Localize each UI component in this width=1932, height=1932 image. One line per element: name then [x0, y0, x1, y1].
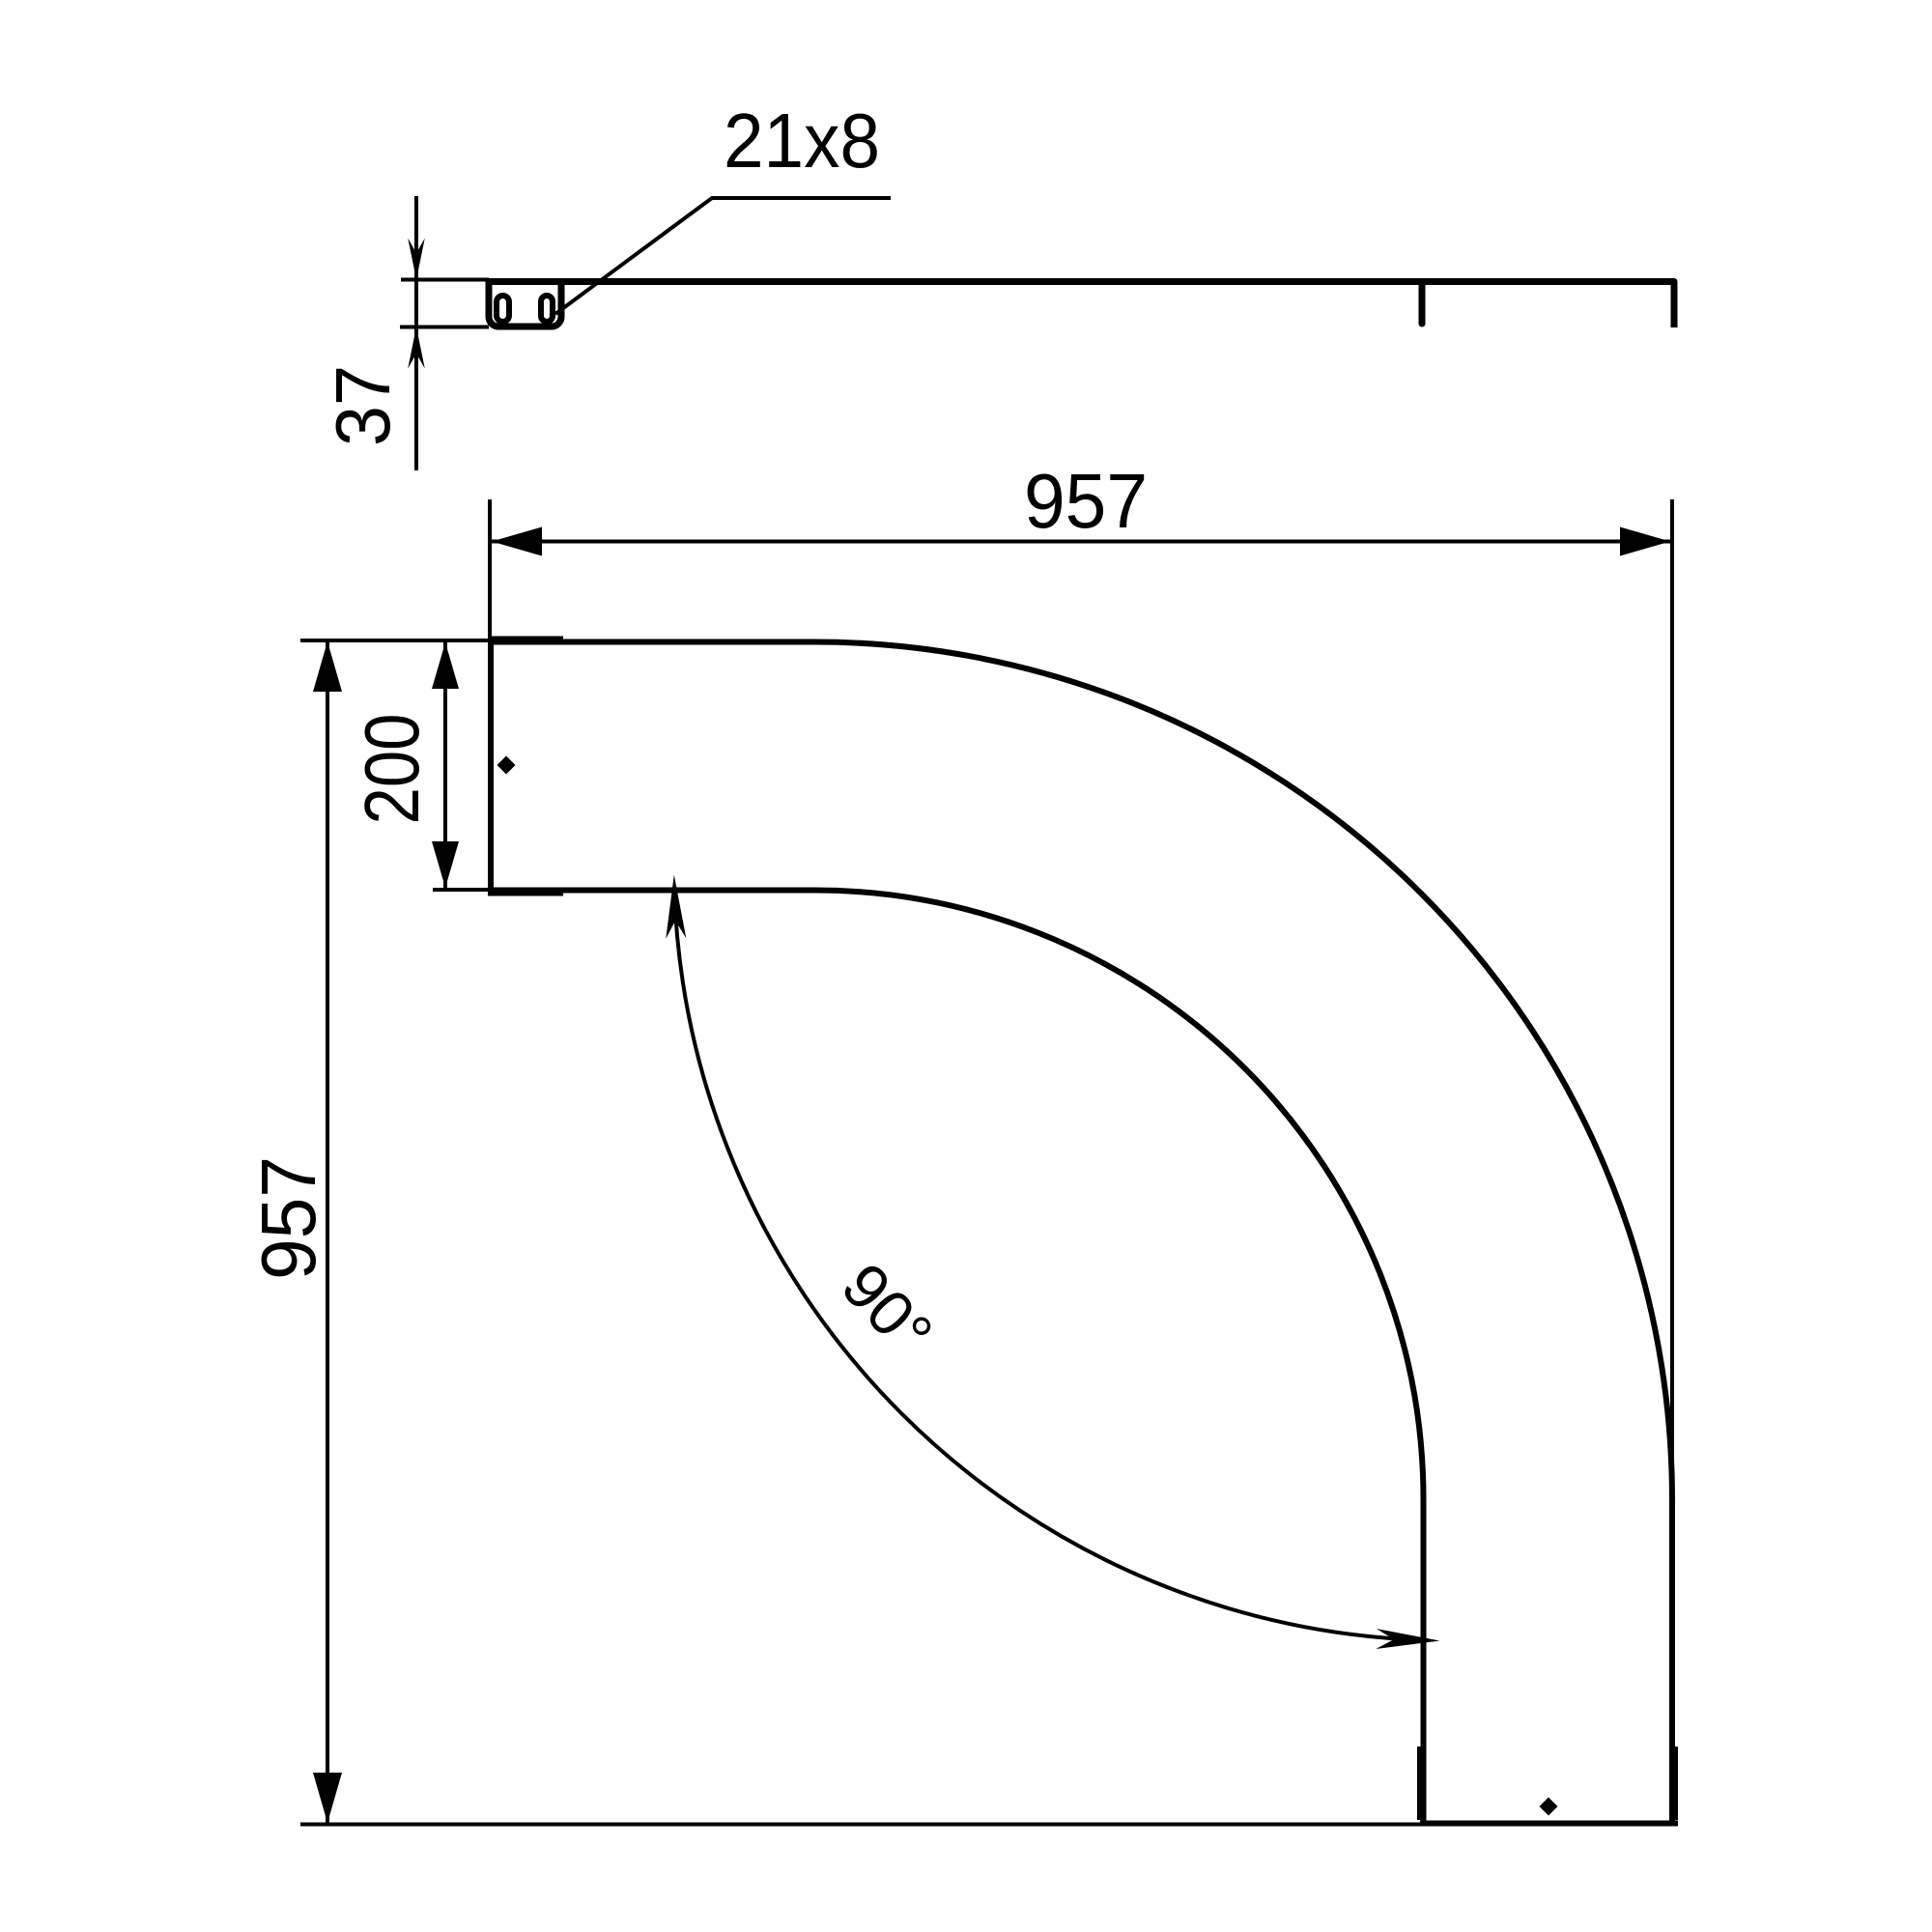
svg-text:957: 957 [1024, 458, 1148, 544]
svg-text:21x8: 21x8 [724, 98, 880, 184]
svg-text:957: 957 [245, 1156, 331, 1280]
svg-text:200: 200 [349, 714, 435, 825]
svg-text:37: 37 [320, 365, 406, 446]
